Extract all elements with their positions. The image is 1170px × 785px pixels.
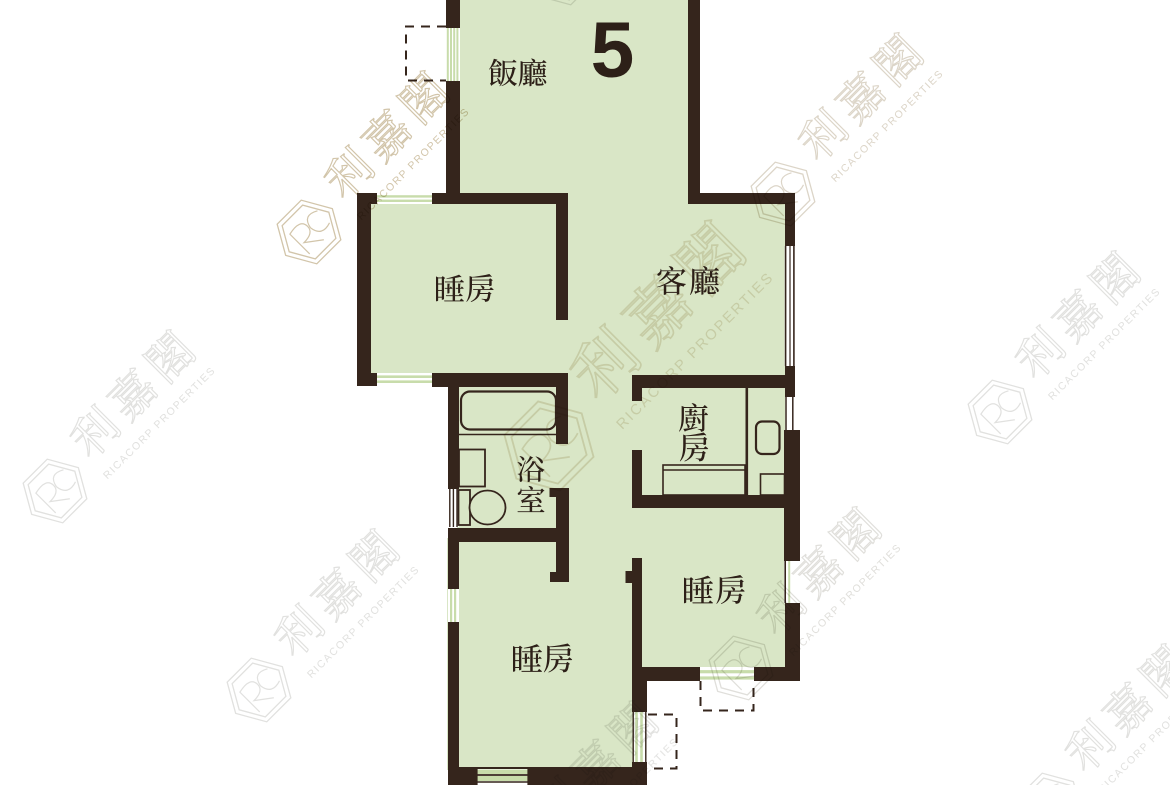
svg-text:RICACORP PROPERTIES: RICACORP PROPERTIES — [101, 364, 218, 481]
svg-text:RICACORP PROPERTIES: RICACORP PROPERTIES — [829, 67, 946, 184]
svg-text:RICACORP PROPERTIES: RICACORP PROPERTIES — [1046, 285, 1163, 402]
svg-text:RICACORP PROPERTIES: RICACORP PROPERTIES — [305, 563, 422, 680]
svg-text:5: 5 — [591, 6, 635, 94]
svg-text:RICACORP PROPERTIES: RICACORP PROPERTIES — [787, 541, 904, 658]
